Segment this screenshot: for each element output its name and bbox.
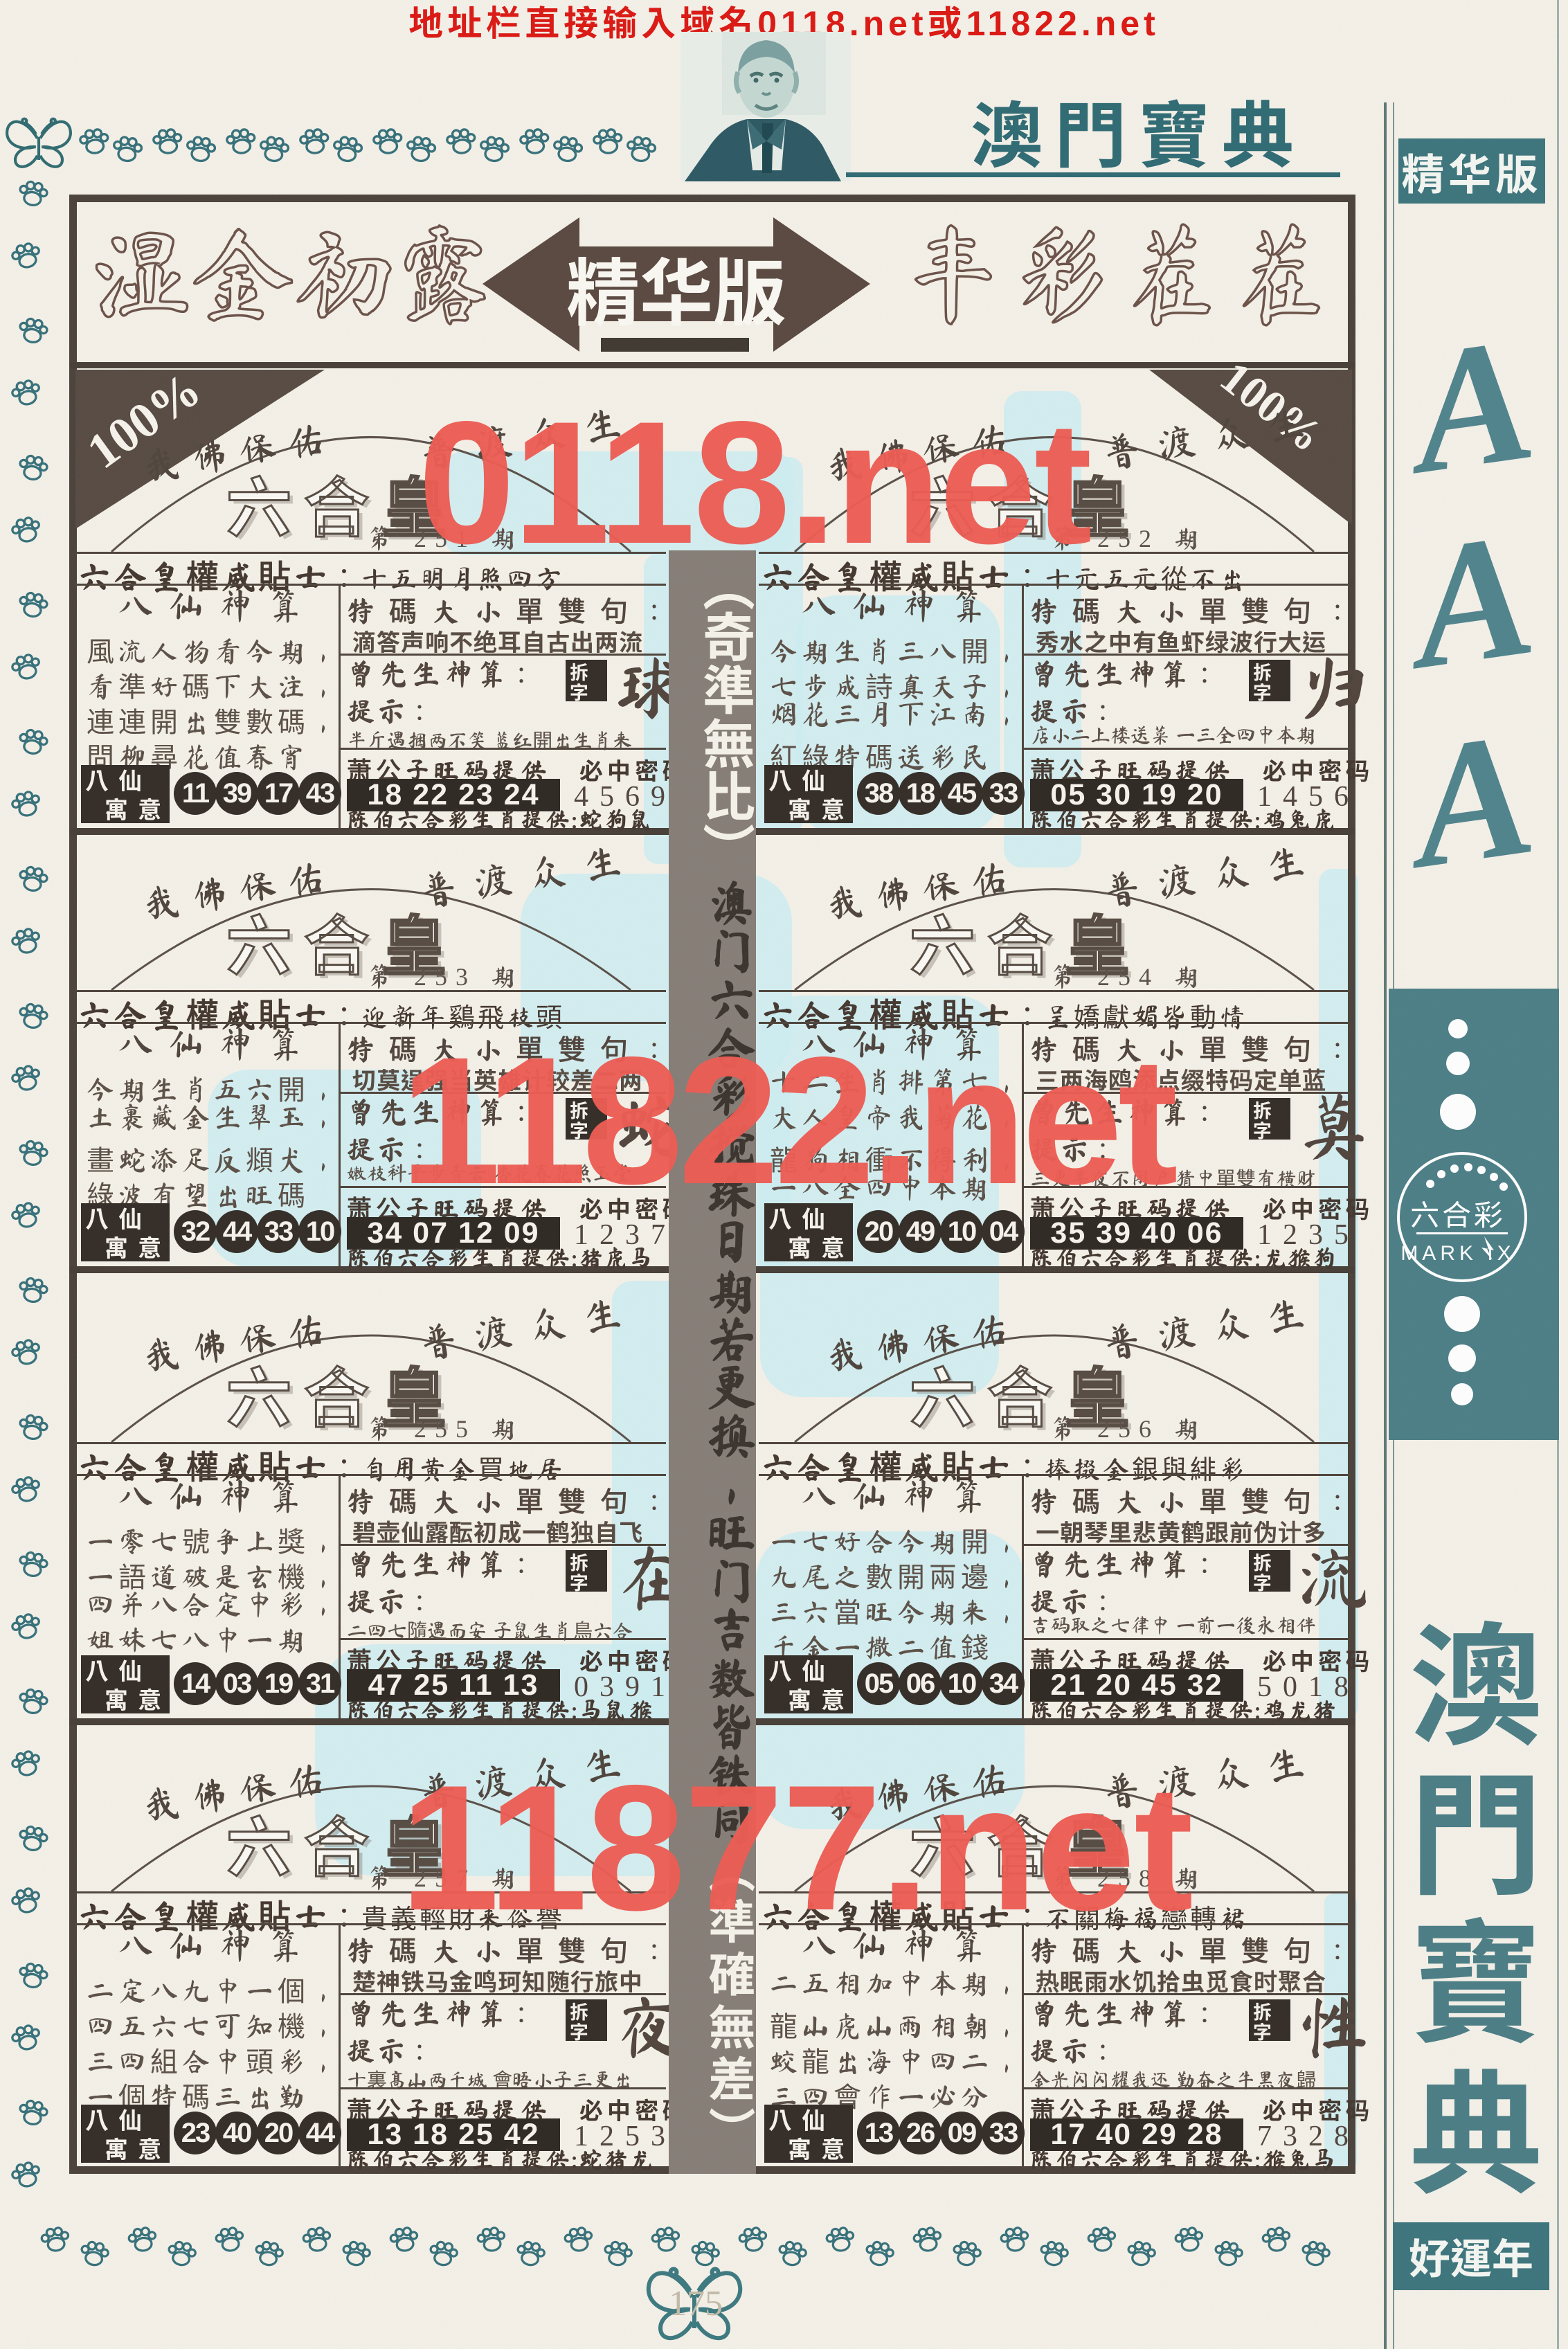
svg-text:MARK IX: MARK IX <box>1400 1242 1515 1265</box>
svg-text:六合彩: 六合彩 <box>1410 1192 1506 1234</box>
